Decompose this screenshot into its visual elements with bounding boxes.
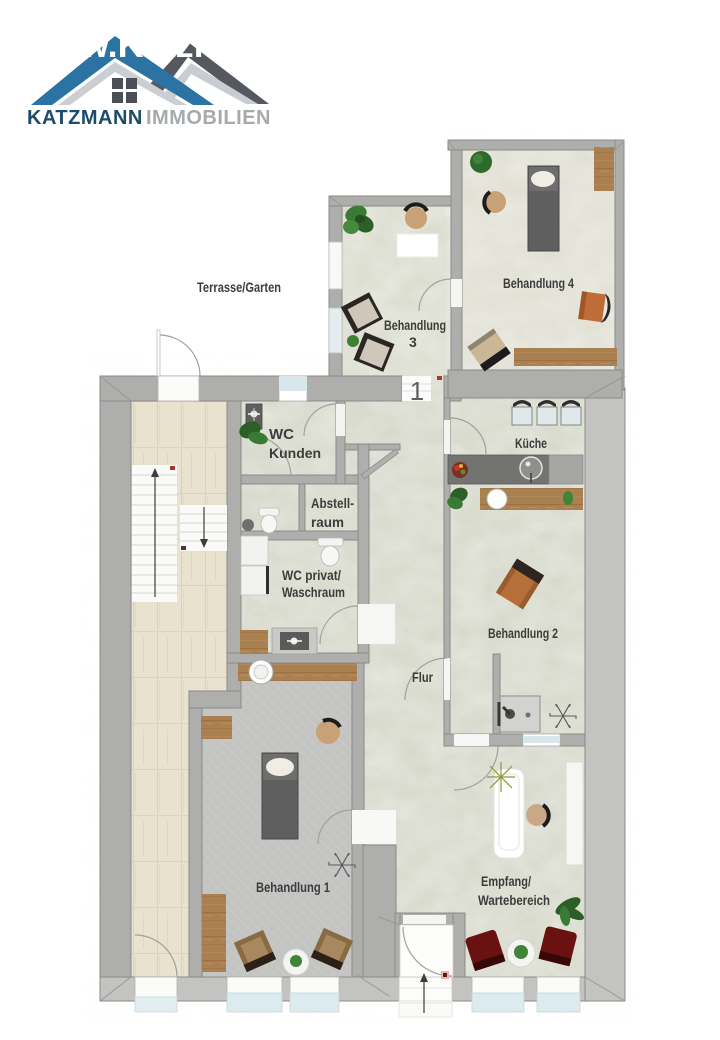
svg-text:IMMOBILIEN: IMMOBILIEN [146, 107, 271, 129]
svg-text:3: 3 [409, 334, 417, 350]
svg-text:WC privat/: WC privat/ [282, 567, 341, 583]
svg-text:Behandlung: Behandlung [384, 317, 446, 333]
svg-text:1: 1 [410, 376, 424, 406]
svg-text:ww.Katzmann: ww.Katzmann [52, 24, 290, 65]
svg-text:Wartebereich: Wartebereich [478, 892, 550, 908]
svg-text:Terrasse/Garten: Terrasse/Garten [197, 280, 281, 295]
svg-text:Abstell-: Abstell- [311, 495, 354, 511]
svg-text:Waschraum: Waschraum [282, 584, 345, 600]
svg-text:raum: raum [311, 514, 344, 530]
svg-text:Küche: Küche [515, 435, 547, 451]
svg-text:Kunden: Kunden [269, 445, 321, 461]
svg-text:WC: WC [269, 426, 294, 443]
svg-text:Flur: Flur [412, 669, 433, 685]
svg-text:Behandlung 2: Behandlung 2 [488, 625, 558, 641]
svg-text:KATZMANN: KATZMANN [27, 107, 143, 129]
svg-text:Behandlung 1: Behandlung 1 [256, 879, 330, 895]
svg-text:Empfang/: Empfang/ [481, 873, 531, 889]
svg-text:Behandlung 4: Behandlung 4 [503, 275, 574, 291]
